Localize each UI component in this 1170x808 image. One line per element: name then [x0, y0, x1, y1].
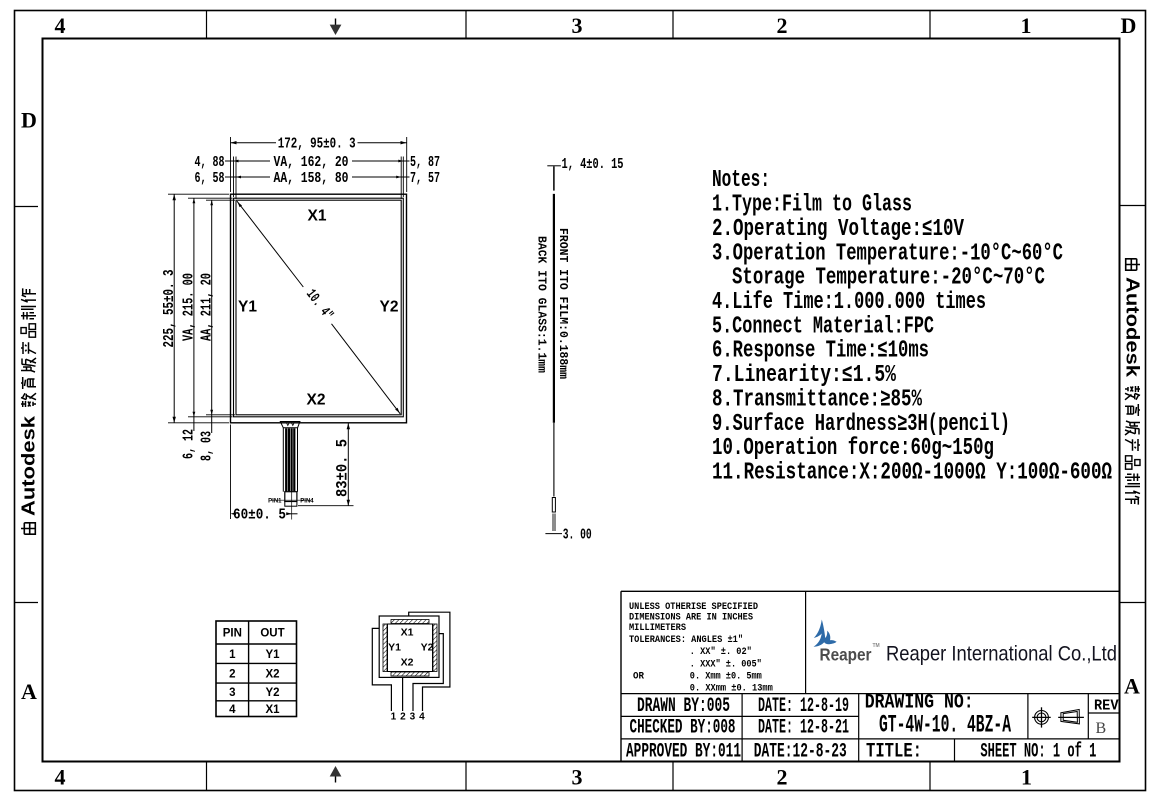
- svg-text:Notes:: Notes:: [712, 167, 770, 194]
- svg-text:7, 57: 7, 57: [410, 170, 440, 187]
- svg-text:B: B: [1096, 720, 1107, 737]
- svg-text:1: 1: [391, 712, 397, 723]
- svg-text:4.Life Time:1.000.000 times: 4.Life Time:1.000.000 times: [712, 289, 986, 316]
- svg-text:CHECKED BY:008: CHECKED BY:008: [630, 717, 736, 740]
- svg-text:REV: REV: [1094, 698, 1119, 715]
- svg-text:TM: TM: [873, 643, 880, 649]
- svg-text:X1: X1: [401, 627, 414, 639]
- svg-text:TITLE:: TITLE:: [866, 740, 922, 763]
- svg-text:0. Xmm ±0. 5mm: 0. Xmm ±0. 5mm: [690, 671, 762, 683]
- svg-text:6, 58: 6, 58: [195, 170, 225, 187]
- svg-text:VA, 215. 00: VA, 215. 00: [181, 273, 198, 341]
- svg-text:4: 4: [55, 13, 66, 38]
- svg-text:X2: X2: [401, 657, 414, 669]
- svg-text:AA, 158, 80: AA, 158, 80: [274, 170, 349, 187]
- svg-text:A: A: [1124, 674, 1140, 699]
- svg-text:8, 03: 8, 03: [198, 431, 215, 461]
- svg-text:3: 3: [229, 687, 235, 699]
- svg-text:2: 2: [777, 765, 788, 790]
- svg-text:7.Linearity:≤1.5%: 7.Linearity:≤1.5%: [712, 362, 896, 389]
- svg-text:PIN1: PIN1: [268, 498, 282, 504]
- svg-text:6, 12: 6, 12: [181, 429, 198, 459]
- svg-text:A: A: [21, 679, 37, 704]
- svg-text:DRAWN BY:005: DRAWN BY:005: [637, 695, 730, 718]
- svg-text:1, 4±0. 15: 1, 4±0. 15: [562, 156, 624, 173]
- svg-text:3. 00: 3. 00: [563, 527, 592, 544]
- svg-text:3: 3: [572, 765, 583, 790]
- svg-text:Y2: Y2: [421, 642, 434, 654]
- svg-text:Autodesk: Autodesk: [18, 415, 38, 516]
- svg-text:0. XXmm ±0. 13mm: 0. XXmm ±0. 13mm: [690, 683, 773, 695]
- svg-text:DATE:12-8-23: DATE:12-8-23: [754, 740, 847, 763]
- svg-text:PIN4: PIN4: [300, 498, 314, 504]
- svg-text:DATE: 12-8-19: DATE: 12-8-19: [758, 695, 849, 718]
- svg-text:8.Transmittance:≥85%: 8.Transmittance:≥85%: [712, 386, 922, 413]
- svg-text:3: 3: [410, 712, 416, 723]
- svg-text:172, 95±0. 3: 172, 95±0. 3: [278, 136, 356, 153]
- svg-text:3.Operation Temperature:-10°C~: 3.Operation Temperature:-10°C~60°C: [712, 240, 1063, 267]
- svg-text:1: 1: [229, 649, 236, 661]
- svg-text:DATE: 12-8-21: DATE: 12-8-21: [758, 717, 849, 740]
- svg-text:1: 1: [1021, 765, 1032, 790]
- svg-text:. XXX″ ±. 005″: . XXX″ ±. 005″: [690, 658, 762, 670]
- svg-text:X1: X1: [265, 704, 280, 716]
- svg-text:OUT: OUT: [260, 628, 284, 640]
- svg-text:TOLERANCES: ANGLES ±1″: TOLERANCES: ANGLES ±1″: [629, 634, 743, 646]
- svg-text:Y1: Y1: [265, 649, 280, 661]
- svg-text:5.Connect Material:FPC: 5.Connect Material:FPC: [712, 313, 934, 340]
- svg-text:Y2: Y2: [380, 299, 399, 316]
- svg-text:Reaper International Co.,Ltd: Reaper International Co.,Ltd: [886, 642, 1117, 666]
- svg-text:Y1: Y1: [388, 642, 401, 654]
- svg-text:VA, 162, 20: VA, 162, 20: [274, 154, 349, 171]
- svg-text:83±0. 5: 83±0. 5: [334, 439, 352, 497]
- svg-text:. XX″ ±. 02″: . XX″ ±. 02″: [690, 646, 752, 658]
- svg-text:2.Operating Voltage:≤10V: 2.Operating Voltage:≤10V: [712, 216, 964, 243]
- svg-text:5, 87: 5, 87: [410, 154, 440, 171]
- svg-text:MILLIMETERS: MILLIMETERS: [629, 622, 686, 634]
- svg-text:4: 4: [55, 765, 66, 790]
- svg-text:1.Type:Film to Glass: 1.Type:Film to Glass: [712, 192, 912, 219]
- svg-text:4, 88: 4, 88: [195, 154, 225, 171]
- svg-text:Storage Temperature:-20°C~70°C: Storage Temperature:-20°C~70°C: [732, 265, 1045, 292]
- svg-text:Y2: Y2: [265, 687, 279, 699]
- svg-text:4: 4: [229, 704, 236, 716]
- svg-text:AA, 211, 20: AA, 211, 20: [198, 273, 215, 341]
- svg-text:OR: OR: [633, 671, 645, 683]
- svg-text:Autodesk: Autodesk: [1123, 277, 1143, 378]
- svg-text:2: 2: [400, 712, 406, 723]
- svg-text:D: D: [21, 108, 37, 133]
- svg-text:X1: X1: [308, 208, 327, 225]
- svg-text:X2: X2: [307, 392, 326, 409]
- svg-text:3: 3: [572, 13, 583, 38]
- svg-text:9.Surface Hardness≥3H(pencil): 9.Surface Hardness≥3H(pencil): [712, 411, 1010, 438]
- svg-text:BACK ITO GLASS:1.1mm: BACK ITO GLASS:1.1mm: [535, 236, 548, 373]
- svg-text:6.Response Time:≤10ms: 6.Response Time:≤10ms: [712, 338, 929, 365]
- svg-text:11.Resistance:X:200Ω-1000Ω Y:1: 11.Resistance:X:200Ω-1000Ω Y:100Ω-600Ω: [712, 460, 1112, 487]
- svg-text:225, 55±0. 3: 225, 55±0. 3: [161, 270, 178, 348]
- svg-text:Reaper: Reaper: [820, 645, 872, 665]
- svg-text:X2: X2: [265, 668, 279, 680]
- svg-text:60±0. 5: 60±0. 5: [233, 507, 286, 524]
- svg-text:4: 4: [419, 712, 425, 723]
- svg-text:PIN: PIN: [223, 628, 242, 640]
- svg-text:2: 2: [229, 668, 235, 680]
- svg-text:SHEET NO: 1 of 1: SHEET NO: 1 of 1: [980, 740, 1096, 763]
- svg-text:APPROVED BY:011: APPROVED BY:011: [626, 740, 741, 763]
- svg-text:D: D: [1121, 13, 1137, 38]
- svg-text:Y1: Y1: [238, 299, 257, 316]
- svg-text:1: 1: [1021, 13, 1032, 38]
- svg-text:2: 2: [777, 13, 788, 38]
- svg-text:FRONT ITO FILM:0.188mm: FRONT ITO FILM:0.188mm: [556, 228, 569, 379]
- svg-text:GT-4W-10. 4BZ-A: GT-4W-10. 4BZ-A: [879, 711, 1011, 740]
- svg-text:10.Operation force:60g~150g: 10.Operation force:60g~150g: [712, 435, 994, 462]
